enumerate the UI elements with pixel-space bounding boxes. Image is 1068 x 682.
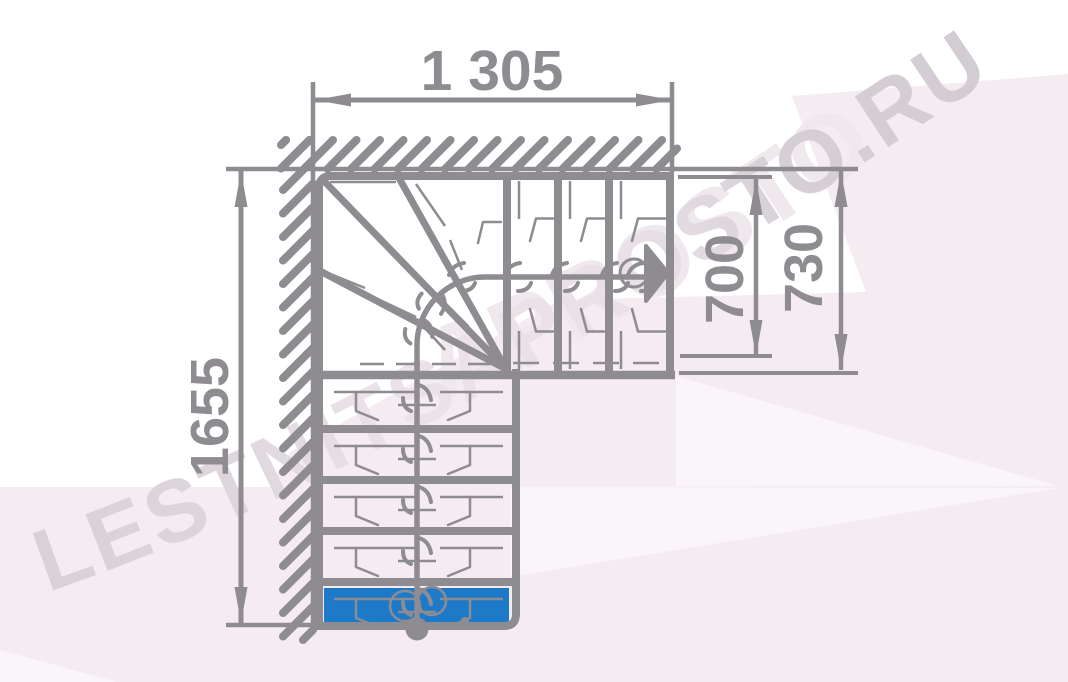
svg-text:1655: 1655 — [180, 357, 240, 477]
svg-text:1 305: 1 305 — [421, 39, 564, 103]
svg-text:730: 730 — [774, 223, 834, 313]
svg-text:700: 700 — [695, 234, 755, 324]
